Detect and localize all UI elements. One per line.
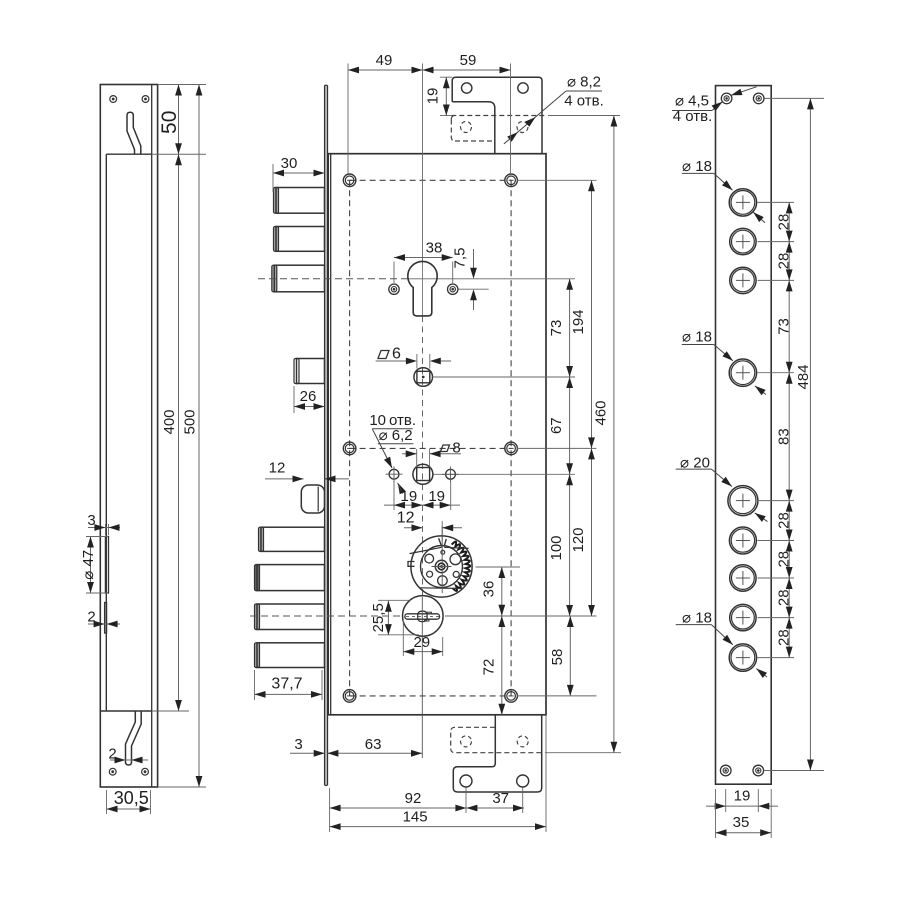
svg-text:37: 37 <box>492 790 509 807</box>
svg-text:⌀ 18: ⌀ 18 <box>682 610 712 627</box>
svg-text:28: 28 <box>775 253 792 270</box>
svg-text:28: 28 <box>775 551 792 568</box>
svg-text:194: 194 <box>570 309 587 334</box>
svg-text:28: 28 <box>775 512 792 529</box>
svg-text:26: 26 <box>300 388 317 405</box>
svg-text:19: 19 <box>424 88 441 105</box>
svg-text:500: 500 <box>182 409 199 434</box>
svg-text:120: 120 <box>570 527 587 552</box>
svg-text:⌀ 6,2: ⌀ 6,2 <box>379 427 413 444</box>
svg-text:30: 30 <box>281 155 298 172</box>
svg-text:484: 484 <box>795 364 812 389</box>
svg-text:36: 36 <box>480 581 497 598</box>
svg-text:35: 35 <box>733 814 750 831</box>
svg-text:⌀ 4,5: ⌀ 4,5 <box>675 93 709 110</box>
svg-text:28: 28 <box>775 214 792 231</box>
svg-text:28: 28 <box>775 629 792 646</box>
svg-text:30,5: 30,5 <box>114 788 149 808</box>
svg-text:100: 100 <box>548 535 565 560</box>
svg-text:83: 83 <box>775 428 792 445</box>
svg-text:⌀ 8,2: ⌀ 8,2 <box>567 74 601 91</box>
svg-text:29: 29 <box>413 634 430 651</box>
svg-text:6: 6 <box>392 346 401 363</box>
svg-text:67: 67 <box>548 417 565 434</box>
svg-text:63: 63 <box>365 736 382 753</box>
svg-text:73: 73 <box>775 318 792 335</box>
svg-text:50: 50 <box>158 111 181 134</box>
svg-text:3: 3 <box>87 512 95 529</box>
svg-text:2: 2 <box>87 609 95 626</box>
svg-text:400: 400 <box>161 409 178 434</box>
svg-text:⌀ 47: ⌀ 47 <box>80 550 97 580</box>
svg-text:37,7: 37,7 <box>271 676 302 693</box>
svg-text:3: 3 <box>294 736 302 753</box>
svg-text:7,5: 7,5 <box>452 248 469 269</box>
svg-text:72: 72 <box>480 659 497 676</box>
svg-text:59: 59 <box>460 52 477 69</box>
svg-text:92: 92 <box>405 790 422 807</box>
svg-text:460: 460 <box>593 400 610 425</box>
svg-text:25,5: 25,5 <box>370 603 387 632</box>
svg-text:19: 19 <box>428 488 445 505</box>
svg-text:8: 8 <box>452 440 460 457</box>
svg-text:⌀ 18: ⌀ 18 <box>682 329 712 346</box>
svg-text:19: 19 <box>401 488 418 505</box>
svg-text:12: 12 <box>269 460 286 477</box>
svg-text:28: 28 <box>775 589 792 606</box>
svg-text:19: 19 <box>734 788 751 805</box>
svg-text:49: 49 <box>376 52 393 69</box>
svg-text:2: 2 <box>108 746 116 763</box>
svg-text:145: 145 <box>403 809 428 826</box>
svg-text:4 отв.: 4 отв. <box>564 93 604 110</box>
svg-text:⌀ 18: ⌀ 18 <box>682 158 712 175</box>
svg-text:38: 38 <box>426 240 443 257</box>
svg-text:12: 12 <box>397 510 415 527</box>
svg-text:58: 58 <box>549 649 566 666</box>
svg-text:73: 73 <box>548 320 565 337</box>
